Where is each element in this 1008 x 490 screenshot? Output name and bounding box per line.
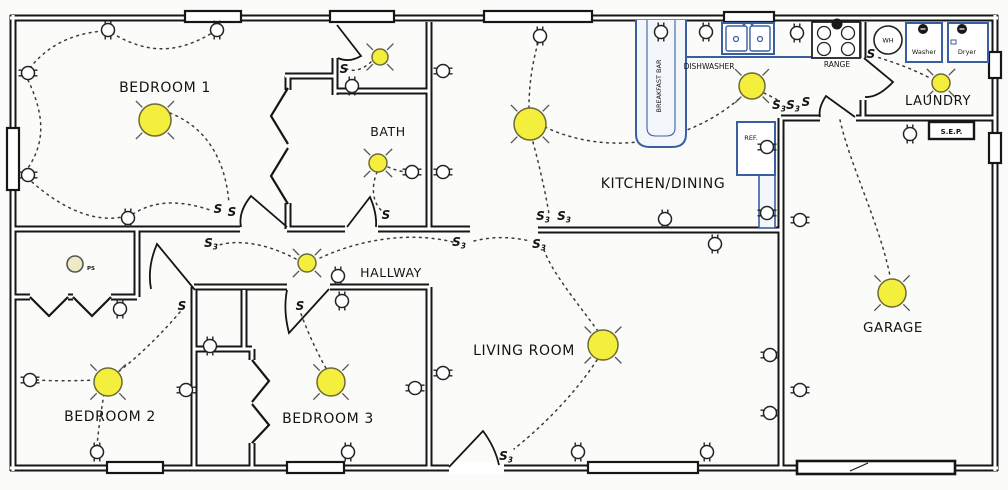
duplex-outlet xyxy=(761,207,774,220)
switch-letter: S xyxy=(532,237,541,251)
switch-label: S xyxy=(867,47,876,61)
switch-letter: S xyxy=(214,202,223,216)
switch-letter: S xyxy=(786,98,795,112)
dryer xyxy=(948,23,988,62)
duplex-outlet xyxy=(409,382,422,395)
switch-subscript: 3 xyxy=(566,216,571,225)
switch-letter: S xyxy=(772,98,781,112)
switch-label: S xyxy=(228,205,237,219)
switch-letter: S xyxy=(178,299,187,313)
duplex-outlet xyxy=(114,303,127,316)
range-240v-outlet xyxy=(832,19,843,30)
switch-subscript: 3 xyxy=(508,456,513,465)
switch-letter: S xyxy=(204,236,213,250)
room-label-garage: GARAGE xyxy=(863,320,923,336)
dishwasher-label: DISHWASHER xyxy=(684,62,735,71)
duplex-outlet xyxy=(346,80,359,93)
pull-switch-label: PS xyxy=(87,266,95,272)
switch-letter: S xyxy=(228,205,237,219)
ceiling-light xyxy=(514,108,546,140)
kitchen-sink xyxy=(722,23,774,54)
duplex-outlet xyxy=(122,212,135,225)
window xyxy=(7,128,19,190)
window xyxy=(185,11,241,22)
switch-subscript: 3 xyxy=(795,105,800,114)
ceiling-light xyxy=(739,73,765,99)
window xyxy=(330,11,394,22)
duplex-outlet xyxy=(437,367,450,380)
window xyxy=(588,462,698,473)
switch-letter: S xyxy=(557,209,566,223)
faucet-dot xyxy=(743,23,746,26)
dryer-label: Dryer xyxy=(958,48,977,56)
switch-subscript: 3 xyxy=(213,243,218,252)
ceiling-light xyxy=(94,368,122,396)
switch-letter: S xyxy=(382,208,391,222)
washer-label: Washer xyxy=(912,48,936,56)
duplex-outlet xyxy=(22,169,35,182)
switch-letter: S xyxy=(296,299,305,313)
garage-door xyxy=(797,461,955,474)
window xyxy=(287,462,344,473)
room-label-bedroom3: BEDROOM 3 xyxy=(282,411,374,427)
switch-label: S xyxy=(178,299,187,313)
floor-plan: BREAKFAST BARDISHWASHERRANGEREF.WHWasher… xyxy=(0,0,1008,490)
room-label-hallway: HALLWAY xyxy=(360,265,422,280)
duplex-outlet xyxy=(659,213,672,226)
ceiling-light xyxy=(372,49,388,65)
duplex-outlet xyxy=(701,446,714,459)
window xyxy=(724,12,774,22)
switch-label: S xyxy=(340,62,349,76)
ceiling-light xyxy=(932,74,950,92)
ceiling-light xyxy=(317,368,345,396)
duplex-outlet xyxy=(22,67,35,80)
window xyxy=(484,11,592,22)
duplex-outlet xyxy=(709,238,722,251)
pull-switch-light xyxy=(67,256,83,272)
duplex-outlet xyxy=(764,349,777,362)
window xyxy=(989,52,1001,78)
duplex-outlet xyxy=(791,27,804,40)
duplex-outlet xyxy=(24,374,37,387)
room-label-bedroom2: BEDROOM 2 xyxy=(64,409,156,425)
duplex-outlet xyxy=(794,214,807,227)
switch-label: S xyxy=(296,299,305,313)
switch-label: S xyxy=(802,95,811,109)
breakfast-bar-label: BREAKFAST BAR xyxy=(655,59,663,112)
duplex-outlet xyxy=(102,24,115,37)
switch-subscript: 3 xyxy=(541,244,546,253)
room-label-bath: BATH xyxy=(370,124,406,139)
switch-letter: S xyxy=(452,235,461,249)
window xyxy=(107,462,163,473)
refrigerator-label: REF. xyxy=(744,134,757,142)
duplex-outlet xyxy=(904,128,917,141)
duplex-outlet xyxy=(655,26,668,39)
switch-letter: S xyxy=(802,95,811,109)
switch-label: S xyxy=(382,208,391,222)
ceiling-light xyxy=(878,279,906,307)
door-opening xyxy=(449,462,504,474)
ceiling-light xyxy=(588,330,618,360)
room-label-kitchen: KITCHEN/DINING xyxy=(601,176,726,192)
duplex-outlet xyxy=(336,295,349,308)
water-heater-label: WH xyxy=(882,37,893,45)
room-label-bedroom1: BEDROOM 1 xyxy=(119,80,211,96)
duplex-outlet xyxy=(180,384,193,397)
switch-subscript: 3 xyxy=(461,242,466,251)
electrical-floor-plan-drawing: BREAKFAST BARDISHWASHERRANGEREF.WHWasher… xyxy=(0,0,1008,490)
ceiling-light xyxy=(139,104,171,136)
switch-label: S xyxy=(214,202,223,216)
duplex-outlet xyxy=(204,340,217,353)
room-label-living: LIVING ROOM xyxy=(473,343,575,359)
window xyxy=(989,133,1001,163)
duplex-outlet xyxy=(534,30,547,43)
range-label: RANGE xyxy=(824,60,850,69)
ceiling-light xyxy=(369,154,387,172)
room-label-laundry: LAUNDRY xyxy=(905,94,971,109)
duplex-outlet xyxy=(437,65,450,78)
duplex-outlet xyxy=(761,141,774,154)
duplex-outlet xyxy=(342,446,355,459)
duplex-outlet xyxy=(332,270,345,283)
sep-label: S.E.P. xyxy=(941,128,963,136)
switch-letter: S xyxy=(536,209,545,223)
switch-subscript: 3 xyxy=(545,216,550,225)
switch-letter: S xyxy=(340,62,349,76)
duplex-outlet xyxy=(211,24,224,37)
duplex-outlet xyxy=(406,166,419,179)
duplex-outlet xyxy=(700,26,713,39)
duplex-outlet xyxy=(572,446,585,459)
duplex-outlet xyxy=(437,166,450,179)
duplex-outlet xyxy=(91,446,104,459)
switch-letter: S xyxy=(867,47,876,61)
ceiling-light xyxy=(298,254,316,272)
duplex-outlet xyxy=(794,384,807,397)
switch-letter: S xyxy=(499,449,508,463)
duplex-outlet xyxy=(764,407,777,420)
faucet-dot xyxy=(751,23,754,26)
